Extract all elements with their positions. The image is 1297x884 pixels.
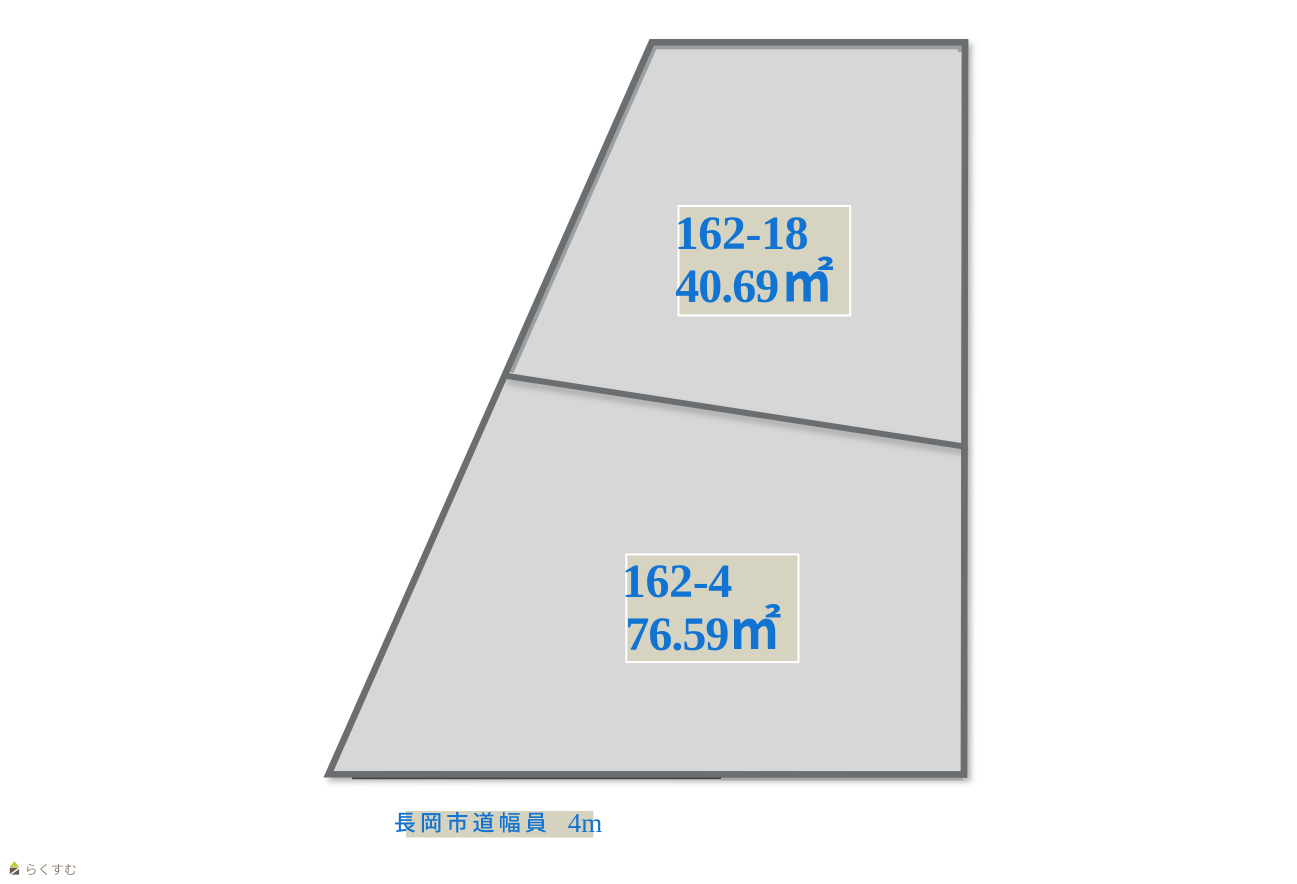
svg-text:162-4: 162-4: [622, 555, 732, 608]
svg-text:40.69: 40.69: [675, 260, 778, 313]
svg-text:4m: 4m: [568, 808, 603, 838]
svg-text:76.59: 76.59: [625, 608, 728, 661]
svg-text:162-18: 162-18: [675, 207, 809, 260]
